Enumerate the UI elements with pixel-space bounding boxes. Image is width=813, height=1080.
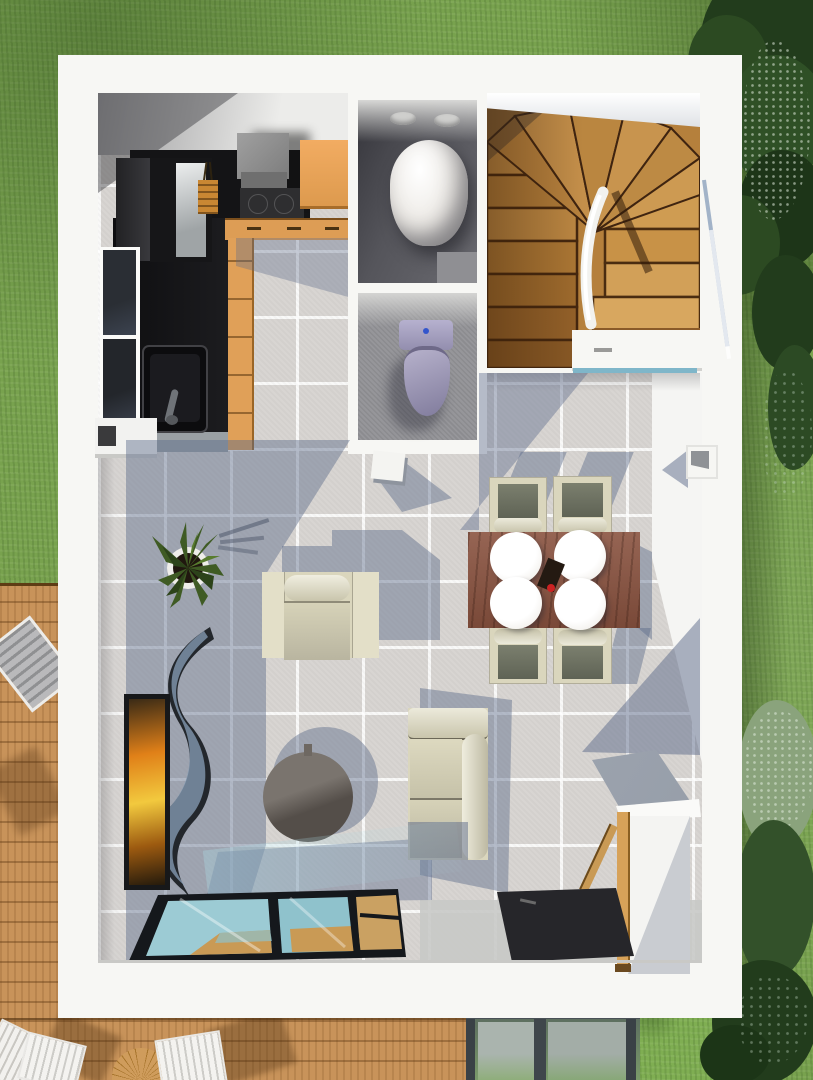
bottom-wall-edge — [98, 960, 702, 963]
sill-vent — [98, 426, 116, 446]
burner-ring — [274, 194, 294, 214]
fridge — [116, 158, 152, 261]
armrest — [262, 572, 285, 658]
drawer-handle — [287, 227, 301, 230]
dining-chair — [553, 627, 612, 684]
understairs-cupboard — [572, 330, 702, 371]
panel-shadow — [628, 816, 690, 974]
outdoor-chair-right — [154, 1030, 227, 1080]
glass-fence — [466, 1012, 640, 1080]
glass-fence-pane — [548, 1022, 626, 1080]
ceiling-vent — [434, 114, 460, 127]
dining-table — [468, 532, 640, 628]
kitchen-window — [100, 247, 140, 429]
chair-seat — [498, 645, 538, 679]
dining-chair — [553, 476, 612, 537]
wc-room-floor — [358, 293, 477, 440]
fence-post — [534, 1012, 546, 1080]
dining-chair — [489, 477, 547, 537]
seat-cushion — [284, 601, 350, 660]
kitchen-drawers — [225, 218, 352, 240]
cutting-board — [198, 180, 218, 214]
niche-inner — [691, 451, 709, 469]
wc-door-jamb — [371, 450, 406, 481]
dinner-plate — [490, 577, 542, 629]
wall-art — [124, 694, 170, 890]
sofa-cushion — [410, 739, 462, 800]
centerpiece-fruit — [547, 584, 555, 592]
chair-cushion — [558, 630, 607, 645]
back-cushion — [284, 575, 350, 601]
chair-seat — [562, 483, 603, 517]
burner-ring — [248, 194, 268, 214]
cooktop — [240, 188, 304, 218]
armrest — [352, 572, 379, 658]
console-side-panel — [628, 816, 690, 974]
kitchen-cabinet-orange-top — [300, 140, 352, 209]
water-cylinder — [390, 140, 468, 246]
dining-chair — [489, 626, 547, 684]
toilet-flush-button — [423, 328, 429, 334]
chair-seat — [562, 646, 603, 679]
utensil-holder — [196, 162, 220, 214]
dinner-plate — [554, 530, 606, 582]
chair-seat — [498, 484, 538, 518]
staircase — [487, 100, 700, 368]
wall-niche — [686, 445, 718, 479]
fence-post — [466, 1012, 475, 1080]
tree-foliage — [735, 820, 813, 980]
window-pane — [103, 339, 136, 426]
sink-basin — [150, 354, 200, 422]
dinner-plate — [554, 578, 606, 630]
drawer-handle — [325, 227, 339, 230]
console-foot — [615, 964, 631, 972]
coffee-table — [263, 752, 353, 842]
drawer-handle — [247, 227, 261, 230]
glass-floor-panel — [120, 885, 410, 965]
shower-room-floor — [358, 100, 477, 283]
fence-post — [626, 1012, 636, 1080]
table-stem — [304, 744, 312, 756]
window-pane — [103, 250, 136, 335]
shower-step — [437, 252, 477, 283]
ceiling-vent — [390, 112, 416, 125]
potted-plant — [150, 516, 230, 612]
floorplan-scene — [0, 0, 813, 1080]
glass-fence-pane — [478, 1022, 534, 1080]
faucet-base — [166, 415, 178, 425]
cupboard-handle — [594, 348, 612, 352]
chair-cushion — [494, 629, 542, 644]
armchair — [262, 572, 378, 658]
chair-cushion — [494, 518, 542, 533]
